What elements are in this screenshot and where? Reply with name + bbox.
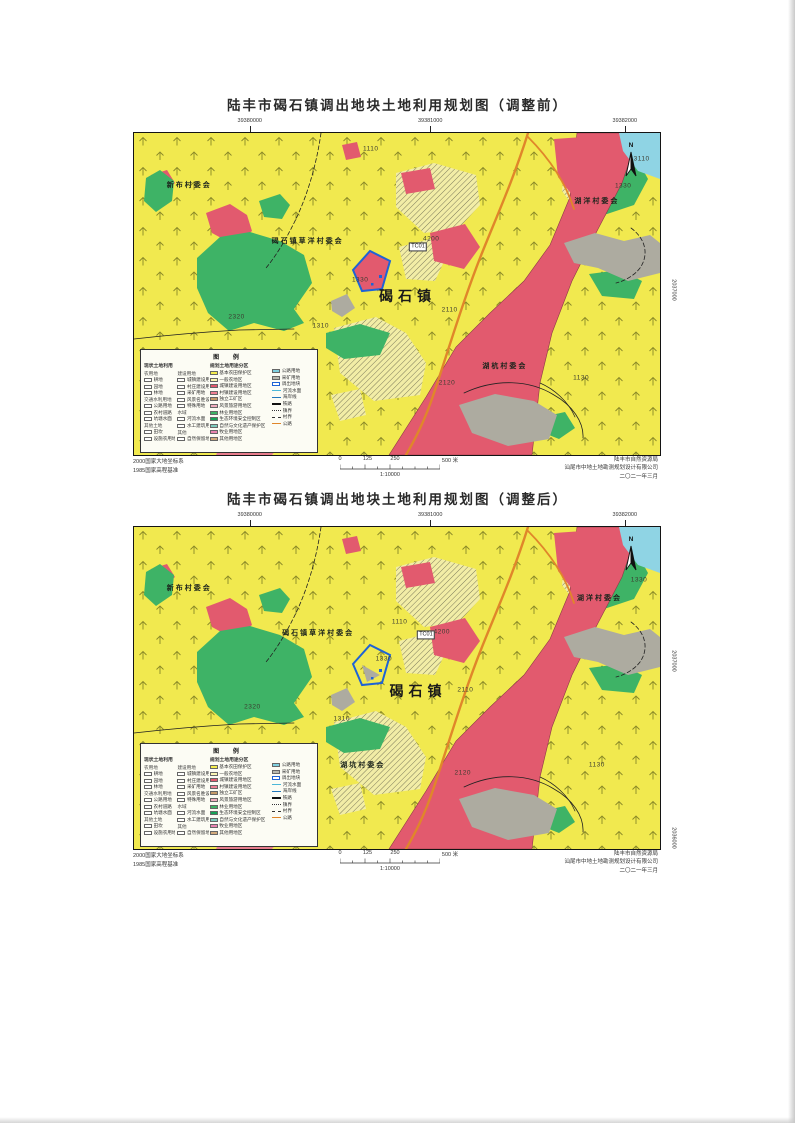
attribution: 陆丰市自然资源局 汕尾市中地土地勘测规划设计有限公司 二〇二一年三月 [498, 456, 658, 481]
legend-swatch [272, 804, 281, 805]
scale-tick-label: 250 [390, 456, 399, 462]
legend-label: 采矿用地 [187, 390, 205, 396]
legend-item: 田坎 [144, 429, 175, 435]
legend-label: 风景名胜设施用地 [187, 397, 209, 403]
legend-swatch [210, 798, 218, 802]
legend-swatch [272, 410, 281, 411]
legend-item: 设施农用地 [144, 436, 175, 442]
legend-item: 耕地 [144, 771, 175, 777]
legend-item: 公路 [272, 815, 314, 821]
legend-swatch [272, 376, 280, 380]
legend-label: 铁路 [283, 795, 292, 801]
legend-label: 其他用地区 [219, 436, 242, 442]
legend-label: 特殊用地 [187, 797, 205, 803]
legend-label: 风景名胜设施用地 [187, 791, 209, 797]
scale-tick-label: 125 [363, 850, 372, 856]
legend-item: 城镇建设用地 [177, 771, 208, 777]
legend-swatch [144, 404, 152, 408]
legend-swatch [177, 772, 185, 776]
legend-swatch [144, 811, 152, 815]
legend-item: 村界 [272, 414, 314, 420]
legend-swatch [210, 378, 218, 382]
attribution-date: 二〇二一年三月 [498, 867, 658, 875]
legend-item: 水工建筑用地 [177, 423, 208, 429]
legend-label: 采矿用地 [282, 769, 300, 775]
legend-label: 公路用地 [154, 797, 172, 803]
scale-tick-labels: 0125250500 米 [340, 850, 450, 857]
legend-item: 采矿用地 [272, 375, 314, 381]
legend-group-header: 其他土地 [144, 817, 175, 823]
legend-item: 风景旅游用地区 [210, 797, 269, 803]
legend-item: 镇界 [272, 802, 314, 808]
legend-swatch [210, 411, 218, 415]
legend-item: 河流水面 [272, 388, 314, 394]
legend-label: 生态环境安全控制区 [219, 810, 260, 816]
scale-tick-label: 0 [338, 456, 341, 462]
legend-swatch [144, 772, 152, 776]
legend: 图 例 现状土地利用 农用地耕地园地林地交通水利用地公路用地农村道路坑塘水面其他… [140, 743, 318, 847]
legend-swatch [272, 791, 281, 792]
legend-item: 风景名胜设施用地 [177, 397, 208, 403]
legend-item: 林业用地区 [210, 804, 269, 810]
legend-swatch [272, 390, 281, 391]
legend-label: 河流水面 [187, 810, 205, 816]
legend-swatch [144, 385, 152, 389]
legend-label: 林地 [154, 390, 163, 396]
legend-label: 镇界 [283, 802, 292, 808]
legend-group-header: 其他 [177, 824, 208, 830]
legend-item: 生态环境安全控制区 [210, 416, 269, 422]
legend-label: 自然保留地 [187, 830, 209, 836]
legend-label: 河流水面 [283, 782, 301, 788]
legend-item: 田坎 [144, 823, 175, 829]
legend-swatch [177, 398, 185, 402]
datum-line-1: 2000国家大地坐标系 [133, 458, 184, 467]
legend-label: 坑塘水面 [154, 416, 172, 422]
legend-item: 采矿用地 [272, 769, 314, 775]
legend-label: 村庄建设用地 [187, 778, 209, 784]
legend-label: 设施农用地 [154, 830, 176, 836]
legend-group-header: 建设用地 [177, 371, 208, 377]
datum-line-2: 1985国家高程基准 [133, 467, 184, 476]
legend-label: 牧业用地区 [219, 429, 242, 435]
legend-group-header: 水域 [177, 804, 208, 810]
coordinate-label: 39382000 [613, 512, 637, 518]
attribution-date: 二〇二一年三月 [498, 473, 658, 481]
scale-tick-label: 500 米 [442, 850, 458, 858]
legend-label: 城镇建设用地 [187, 771, 209, 777]
legend-item: 林地 [144, 784, 175, 790]
parcel-fragment [371, 283, 374, 286]
legend-item: 村镇建设用地区 [210, 784, 269, 790]
legend-swatch [210, 831, 218, 835]
legend-swatch [177, 785, 185, 789]
legend-swatch [210, 778, 218, 782]
legend-label: 风景旅游用地区 [219, 797, 251, 803]
legend-label: 调出地块 [282, 775, 300, 781]
legend-label: 园地 [154, 384, 163, 390]
legend-swatch [177, 391, 185, 395]
legend-label: 水工建筑用地 [187, 817, 209, 823]
legend-label: 耕地 [154, 771, 163, 777]
legend-swatch [177, 798, 185, 802]
legend-swatch [210, 424, 218, 428]
legend-label: 林业用地区 [219, 804, 242, 810]
legend-label: 城镇建设用地区 [219, 383, 251, 389]
coordinate-label: 39382000 [613, 118, 637, 124]
legend-item: 河流水面 [177, 416, 208, 422]
datum-note: 2000国家大地坐标系 1985国家高程基准 [133, 458, 184, 476]
scale-tick-label: 125 [363, 456, 372, 462]
legend-swatch [272, 423, 281, 424]
attribution-company: 汕尾市中地土地勘测规划设计有限公司 [498, 464, 658, 472]
scale-bar: 0125250500 米 1:10000 [340, 850, 450, 872]
datum-line-1: 2000国家大地坐标系 [133, 852, 184, 861]
legend-label: 村镇建设用地区 [219, 390, 251, 396]
legend-item: 风景旅游用地区 [210, 403, 269, 409]
legend-label: 铁路 [283, 401, 292, 407]
legend-item: 耕地 [144, 377, 175, 383]
north-arrow-glyph [622, 544, 640, 572]
legend-item: 其他用地区 [210, 830, 269, 836]
legend-item: 镇界 [272, 408, 314, 414]
map-title-before: 陆丰市碣石镇调出地块土地利用规划图（调整前） [0, 94, 795, 114]
legend-label: 自然保留地 [187, 436, 209, 442]
legend-label: 一般农地区 [219, 377, 242, 383]
legend-label: 其他用地区 [219, 830, 242, 836]
legend-label: 城镇建设用地 [187, 377, 209, 383]
legend-label: 自然与文化遗产保护区 [219, 817, 265, 823]
legend-left-header: 现状土地利用 [144, 362, 207, 369]
legend-swatch [210, 430, 218, 434]
map-panel-after: 陆丰市碣石镇调出地块土地利用规划图（调整后） 39380000393810003… [0, 488, 795, 888]
legend-label: 风景旅游用地区 [219, 403, 251, 409]
legend-swatch [272, 770, 280, 774]
legend-label: 村界 [283, 808, 292, 814]
legend-swatch [210, 818, 218, 822]
legend-item: 铁路 [272, 795, 314, 801]
legend-swatch [144, 430, 152, 434]
scale-tick-label: 250 [390, 850, 399, 856]
legend-item: 自然保留地 [177, 436, 208, 442]
legend-label: 林业用地区 [219, 410, 242, 416]
legend-swatch [210, 391, 218, 395]
legend-item: 园地 [144, 778, 175, 784]
legend-item: 生态环境安全控制区 [210, 810, 269, 816]
legend-item: 村镇建设用地区 [210, 390, 269, 396]
legend-swatch [272, 382, 280, 386]
datum-note: 2000国家大地坐标系 1985国家高程基准 [133, 852, 184, 870]
legend-label: 采矿用地 [187, 784, 205, 790]
legend-label: 公路用地 [282, 762, 300, 768]
legend-swatch [144, 391, 152, 395]
legend-group-header: 水域 [177, 410, 208, 416]
legend-swatch [177, 818, 185, 822]
legend-swatch [177, 404, 185, 408]
legend-label: 林地 [154, 784, 163, 790]
legend-label: 基本农田保护区 [219, 764, 251, 770]
coordinate-label: 39381000 [418, 118, 442, 124]
legend-swatch [210, 397, 218, 401]
legend-left-header: 现状土地利用 [144, 756, 207, 763]
legend-label: 设施农用地 [154, 436, 176, 442]
legend-label: 村庄建设用地 [187, 384, 209, 390]
legend-label: 生态环境安全控制区 [219, 416, 260, 422]
parcel-fragment [379, 275, 382, 278]
legend-item: 农村道路 [144, 410, 175, 416]
legend-item: 自然与文化遗产保护区 [210, 817, 269, 823]
legend-group-header: 农用地 [144, 371, 175, 377]
legend-label: 公路 [283, 815, 292, 821]
legend-group-header: 农用地 [144, 765, 175, 771]
legend-item: 一般农地区 [210, 377, 269, 383]
legend-swatch [210, 437, 218, 441]
legend-aux-items: 公路用地采矿用地调出地块河流水面海岸线铁路镇界村界公路 [272, 368, 314, 427]
legend-label: 海岸线 [283, 394, 297, 400]
scale-tick-labels: 0125250500 米 [340, 456, 450, 463]
legend-item: 铁路 [272, 401, 314, 407]
north-arrow-glyph [622, 150, 640, 178]
legend-label: 公路用地 [282, 368, 300, 374]
legend-swatch [177, 378, 185, 382]
map-canvas-after: 新布村委会碣石镇草洋村委会湖洋村委会湖坑村委会碣石镇111013304200TC… [133, 526, 661, 850]
legend-label: 耕地 [154, 377, 163, 383]
legend-swatch [272, 763, 280, 767]
legend-swatch [144, 417, 152, 421]
legend-label: 公路 [283, 421, 292, 427]
legend-item: 农村道路 [144, 804, 175, 810]
legend-item: 采矿用地 [177, 390, 208, 396]
coordinate-label: 39380000 [238, 118, 262, 124]
legend-label: 自然与文化遗产保护区 [219, 423, 265, 429]
legend-group-header: 交通水利用地 [144, 791, 175, 797]
legend-swatch [272, 776, 280, 780]
legend-item: 牧业用地区 [210, 823, 269, 829]
coordinate-label: 2036000 [671, 828, 677, 849]
legend-swatch [210, 824, 218, 828]
map-canvas-before: 新布村委会碣石镇草洋村委会湖洋村委会湖杭村委会碣石镇11103110133042… [133, 132, 661, 456]
legend-label: 公路用地 [154, 403, 172, 409]
legend-swatch [144, 779, 152, 783]
legend-label: 田坎 [154, 429, 163, 435]
attribution-agency: 陆丰市自然资源局 [498, 850, 658, 858]
legend-item: 调出地块 [272, 381, 314, 387]
legend-plan-items: 基本农田保护区一般农地区城镇建设用地区村镇建设用地区独立工矿区风景旅游用地区林业… [210, 370, 269, 442]
parcel-fragment [379, 669, 382, 672]
legend-current-col-b: 建设用地城镇建设用地村庄建设用地采矿用地风景名胜设施用地特殊用地水域河流水面水工… [177, 370, 208, 443]
legend-label: 调出地块 [282, 381, 300, 387]
legend-swatch [177, 417, 185, 421]
legend-swatch [210, 805, 218, 809]
legend-item: 河流水面 [177, 810, 208, 816]
legend-item: 采矿用地 [177, 784, 208, 790]
legend-item: 风景名胜设施用地 [177, 791, 208, 797]
legend-plan-header: 规划土地用途分区 [210, 756, 269, 763]
attribution: 陆丰市自然资源局 汕尾市中地土地勘测规划设计有限公司 二〇二一年三月 [498, 850, 658, 875]
coordinate-label: 2037000 [671, 651, 677, 672]
legend-label: 基本农田保护区 [219, 370, 251, 376]
legend-label: 河流水面 [283, 388, 301, 394]
legend-swatch [272, 369, 280, 373]
legend: 图 例 现状土地利用 农用地耕地园地林地交通水利用地公路用地农村道路坑塘水面其他… [140, 349, 318, 453]
legend-swatch [177, 831, 185, 835]
legend-item: 特殊用地 [177, 797, 208, 803]
scale-ratio: 1:10000 [340, 472, 440, 478]
legend-item: 城镇建设用地区 [210, 777, 269, 783]
legend-label: 村界 [283, 414, 292, 420]
legend-swatch [272, 817, 281, 818]
legend-label: 一般农地区 [219, 771, 242, 777]
legend-swatch [144, 824, 152, 828]
legend-swatch [177, 424, 185, 428]
legend-label: 农村道路 [154, 804, 172, 810]
legend-swatch [177, 811, 185, 815]
coordinate-label: 39381000 [418, 512, 442, 518]
legend-group-header: 其他 [177, 430, 208, 436]
legend-item: 调出地块 [272, 775, 314, 781]
legend-item: 自然与文化遗产保护区 [210, 423, 269, 429]
north-arrow-icon: N [622, 537, 640, 573]
legend-label: 采矿用地 [282, 375, 300, 381]
legend-plan-header: 规划土地用途分区 [210, 362, 269, 369]
legend-title: 图 例 [144, 746, 314, 755]
legend-item: 独立工矿区 [210, 396, 269, 402]
legend-label: 牧业用地区 [219, 823, 242, 829]
legend-swatch [210, 765, 218, 769]
coordinate-label: 2037000 [671, 279, 677, 300]
legend-item: 河流水面 [272, 782, 314, 788]
legend-item: 其他用地区 [210, 436, 269, 442]
legend-item: 林业用地区 [210, 410, 269, 416]
legend-swatch [272, 403, 281, 406]
legend-swatch [210, 384, 218, 388]
legend-item: 设施农用地 [144, 830, 175, 836]
legend-item: 城镇建设用地区 [210, 383, 269, 389]
scale-bar: 0125250500 米 1:10000 [340, 456, 450, 478]
legend-item: 村庄建设用地 [177, 778, 208, 784]
legend-label: 村镇建设用地区 [219, 784, 251, 790]
legend-label: 坑塘水面 [154, 810, 172, 816]
legend-swatch [210, 811, 218, 815]
legend-group-header: 其他土地 [144, 423, 175, 429]
legend-swatch [210, 404, 218, 408]
legend-swatch [272, 797, 281, 800]
scale-bar-graphic [340, 857, 440, 865]
legend-swatch [210, 785, 218, 789]
legend-item: 海岸线 [272, 788, 314, 794]
map-title-after: 陆丰市碣石镇调出地块土地利用规划图（调整后） [0, 488, 795, 508]
legend-swatch [272, 397, 281, 398]
legend-item: 一般农地区 [210, 771, 269, 777]
legend-item: 林地 [144, 390, 175, 396]
legend-item: 牧业用地区 [210, 429, 269, 435]
map-panel-before: 陆丰市碣石镇调出地块土地利用规划图（调整前） 39380000393810003… [0, 94, 795, 494]
legend-plan-items: 基本农田保护区一般农地区城镇建设用地区村镇建设用地区独立工矿区风景旅游用地区林业… [210, 764, 269, 836]
legend-item: 特殊用地 [177, 403, 208, 409]
legend-swatch [144, 798, 152, 802]
legend-swatch [144, 785, 152, 789]
legend-swatch [144, 831, 152, 835]
legend-swatch [177, 437, 185, 441]
legend-item: 海岸线 [272, 394, 314, 400]
legend-item: 坑塘水面 [144, 810, 175, 816]
legend-item: 公路用地 [144, 797, 175, 803]
legend-item: 独立工矿区 [210, 790, 269, 796]
scale-bar-graphic [340, 463, 440, 471]
legend-swatch [210, 371, 218, 375]
legend-swatch [210, 791, 218, 795]
legend-label: 河流水面 [187, 416, 205, 422]
document-page: 陆丰市碣石镇调出地块土地利用规划图（调整前） 39380000393810003… [0, 0, 795, 1123]
legend-item: 公路用地 [272, 368, 314, 374]
legend-swatch [144, 805, 152, 809]
legend-item: 水工建筑用地 [177, 817, 208, 823]
legend-label: 独立工矿区 [219, 790, 242, 796]
legend-label: 特殊用地 [187, 403, 205, 409]
legend-current-col-a: 农用地耕地园地林地交通水利用地公路用地农村道路坑塘水面其他土地田坎设施农用地 [144, 764, 175, 837]
legend-aux-items: 公路用地采矿用地调出地块河流水面海岸线铁路镇界村界公路 [272, 762, 314, 821]
legend-item: 园地 [144, 384, 175, 390]
legend-title: 图 例 [144, 352, 314, 361]
legend-label: 水工建筑用地 [187, 423, 209, 429]
legend-item: 基本农田保护区 [210, 370, 269, 376]
legend-swatch [177, 779, 185, 783]
legend-swatch [272, 811, 281, 812]
legend-swatch [272, 417, 281, 418]
legend-label: 镇界 [283, 408, 292, 414]
legend-item: 公路用地 [272, 762, 314, 768]
legend-swatch [210, 772, 218, 776]
legend-group-header: 交通水利用地 [144, 397, 175, 403]
legend-item: 城镇建设用地 [177, 377, 208, 383]
legend-label: 农村道路 [154, 410, 172, 416]
legend-label: 园地 [154, 778, 163, 784]
legend-item: 公路用地 [144, 403, 175, 409]
legend-item: 村界 [272, 808, 314, 814]
legend-swatch [177, 792, 185, 796]
scale-ratio: 1:10000 [340, 866, 440, 872]
parcel-fragment [371, 677, 374, 680]
legend-label: 海岸线 [283, 788, 297, 794]
legend-swatch [272, 784, 281, 785]
scale-tick-label: 0 [338, 850, 341, 856]
legend-item: 公路 [272, 421, 314, 427]
coordinate-label: 39380000 [238, 512, 262, 518]
legend-swatch [144, 411, 152, 415]
legend-label: 独立工矿区 [219, 396, 242, 402]
datum-line-2: 1985国家高程基准 [133, 861, 184, 870]
legend-label: 田坎 [154, 823, 163, 829]
legend-current-col-a: 农用地耕地园地林地交通水利用地公路用地农村道路坑塘水面其他土地田坎设施农用地 [144, 370, 175, 443]
legend-item: 基本农田保护区 [210, 764, 269, 770]
legend-item: 自然保留地 [177, 830, 208, 836]
scale-tick-label: 500 米 [442, 456, 458, 464]
legend-swatch [144, 437, 152, 441]
legend-swatch [210, 417, 218, 421]
legend-item: 坑塘水面 [144, 416, 175, 422]
attribution-agency: 陆丰市自然资源局 [498, 456, 658, 464]
attribution-company: 汕尾市中地土地勘测规划设计有限公司 [498, 858, 658, 866]
north-arrow-icon: N [622, 143, 640, 179]
legend-label: 城镇建设用地区 [219, 777, 251, 783]
legend-swatch [144, 378, 152, 382]
legend-item: 村庄建设用地 [177, 384, 208, 390]
legend-group-header: 建设用地 [177, 765, 208, 771]
legend-swatch [177, 385, 185, 389]
legend-current-col-b: 建设用地城镇建设用地村庄建设用地采矿用地风景名胜设施用地特殊用地水域河流水面水工… [177, 764, 208, 837]
